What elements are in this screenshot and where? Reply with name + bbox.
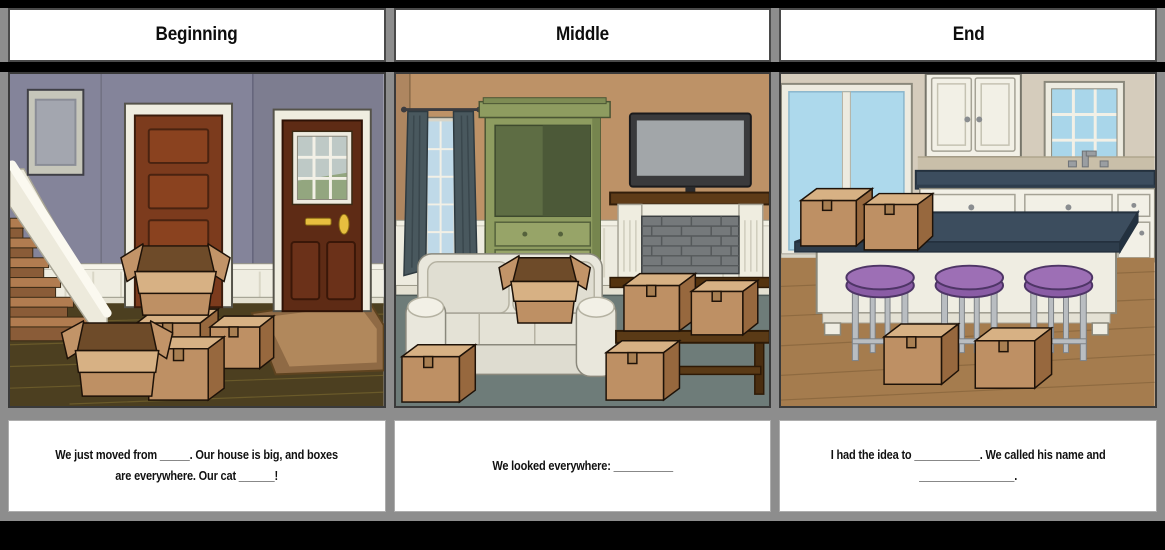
flat-screen-tv bbox=[630, 114, 751, 198]
scene-beginning-illustration bbox=[10, 74, 384, 406]
moving-box-on-island-1 bbox=[801, 189, 872, 246]
bottom-border bbox=[0, 512, 1165, 521]
row-divider bbox=[0, 408, 1165, 420]
title-end: End bbox=[952, 24, 984, 46]
caption-cell-end: I had the idea to ___________. We called… bbox=[779, 420, 1157, 512]
title-beginning: Beginning bbox=[156, 24, 238, 46]
top-border bbox=[0, 0, 1165, 8]
caption-end: I had the idea to ___________. We called… bbox=[831, 445, 1106, 486]
title-middle: Middle bbox=[556, 24, 609, 46]
caption-middle: We looked everywhere: __________ bbox=[492, 456, 673, 477]
title-row: Beginning Middle End bbox=[0, 8, 1165, 62]
picture-frame bbox=[28, 90, 84, 175]
scene-cell-middle[interactable] bbox=[394, 72, 772, 408]
curtain-right bbox=[453, 112, 477, 276]
scene-end-illustration bbox=[781, 74, 1155, 406]
title-cell-end: End bbox=[779, 8, 1157, 62]
caption-beginning: We just moved from _____. Our house is b… bbox=[56, 445, 339, 486]
caption-cell-beginning: We just moved from _____. Our house is b… bbox=[8, 420, 386, 512]
window-with-curtains bbox=[401, 107, 482, 276]
door-knob bbox=[339, 214, 349, 234]
moving-box-floor-left bbox=[402, 345, 475, 402]
caption-cell-middle: We looked everywhere: __________ bbox=[394, 420, 772, 512]
upper-cabinet bbox=[926, 74, 1021, 157]
scene-cell-beginning[interactable] bbox=[8, 72, 386, 408]
title-cell-beginning: Beginning bbox=[8, 8, 386, 62]
curtain-left bbox=[404, 112, 428, 276]
mail-slot bbox=[305, 218, 331, 225]
title-cell-middle: Middle bbox=[394, 8, 772, 62]
front-door bbox=[274, 110, 371, 312]
row-divider bbox=[0, 62, 1165, 72]
moving-box-floor-left bbox=[884, 324, 958, 384]
green-armoire bbox=[479, 98, 610, 278]
back-counter bbox=[916, 171, 1155, 189]
moving-box-on-table-2 bbox=[691, 281, 757, 335]
moving-box-floor-right bbox=[606, 341, 679, 400]
moving-box-floor-right bbox=[976, 328, 1052, 388]
moving-box-on-table-1 bbox=[624, 274, 695, 331]
moving-box-on-island-2 bbox=[865, 194, 933, 250]
scene-cell-end[interactable] bbox=[779, 72, 1157, 408]
scene-row bbox=[0, 72, 1165, 408]
caption-row: We just moved from _____. Our house is b… bbox=[0, 420, 1165, 512]
scene-middle-illustration bbox=[396, 74, 770, 406]
storyboard: Beginning Middle End bbox=[0, 0, 1165, 521]
